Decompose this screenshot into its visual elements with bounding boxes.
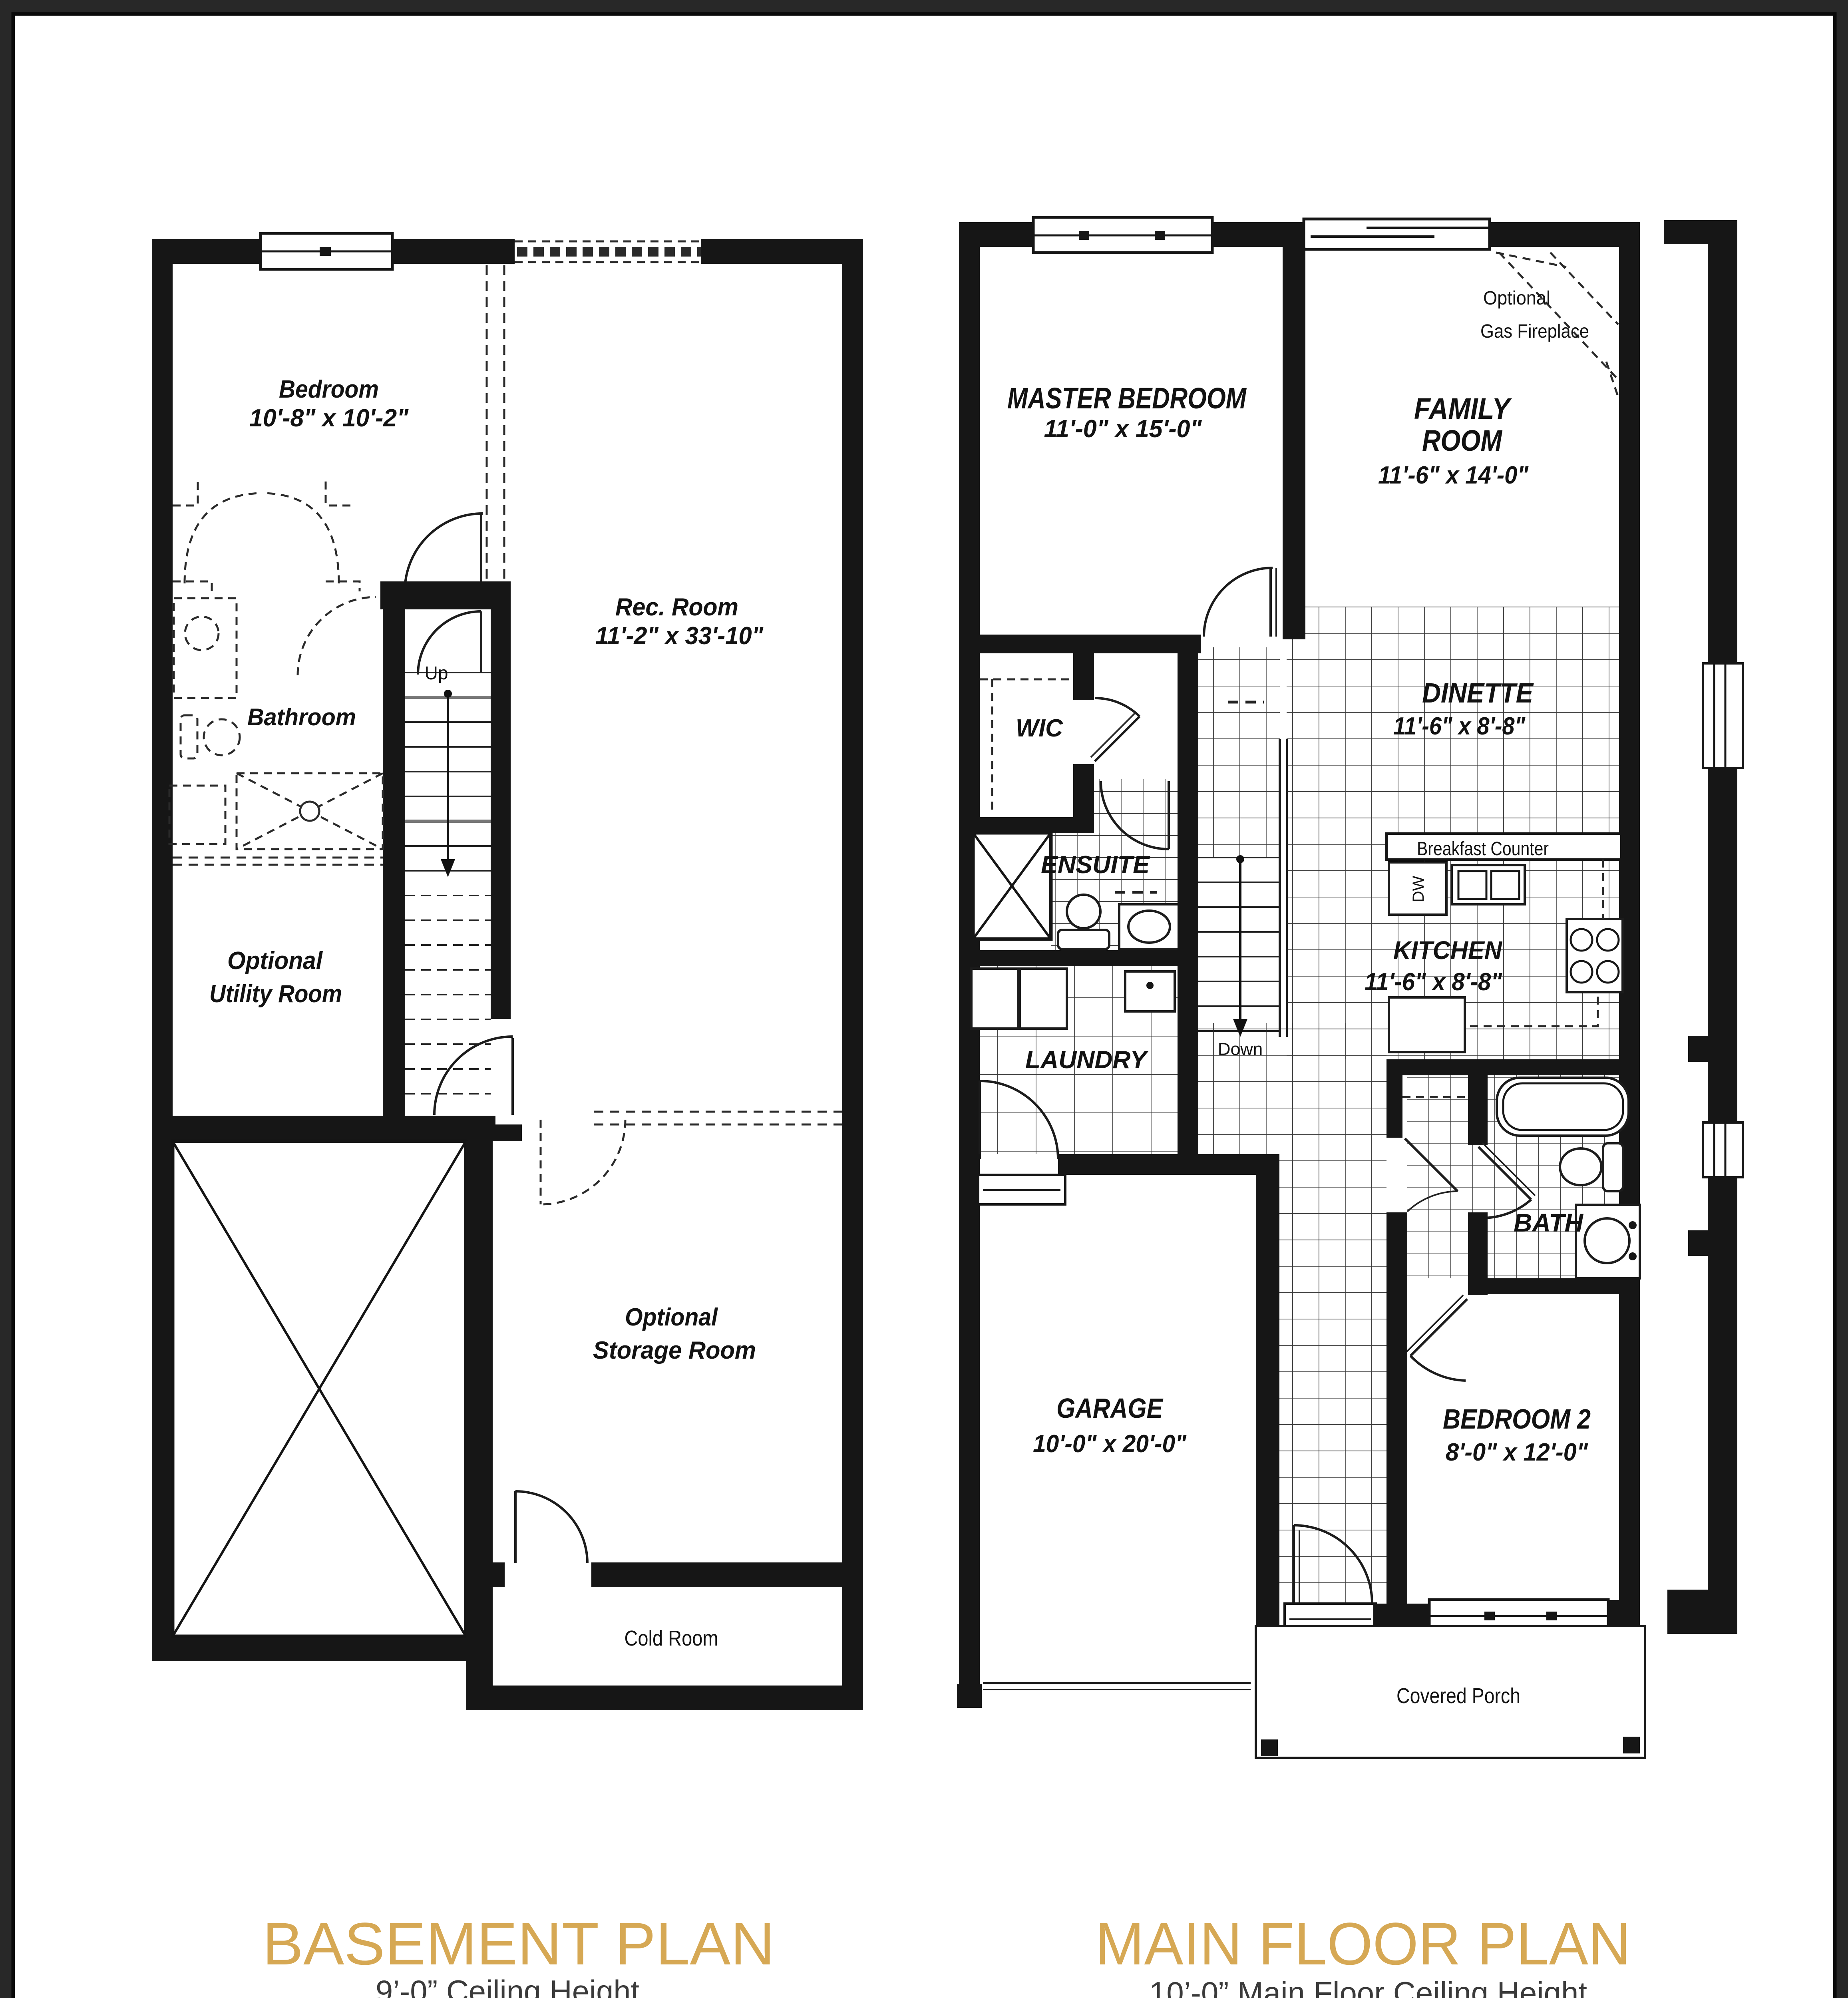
- svg-text:FAMILY: FAMILY: [1414, 392, 1512, 425]
- svg-text:Optional: Optional: [227, 947, 323, 975]
- svg-text:Up: Up: [425, 663, 448, 683]
- svg-text:BASEMENT PLAN: BASEMENT PLAN: [263, 1910, 775, 1977]
- svg-text:11'-6" x 8'-8": 11'-6" x 8'-8": [1393, 712, 1526, 740]
- svg-text:ROOM: ROOM: [1422, 424, 1502, 457]
- svg-text:11'-6" x 8'-8": 11'-6" x 8'-8": [1365, 968, 1503, 996]
- svg-text:MASTER BEDROOM: MASTER BEDROOM: [1007, 382, 1247, 415]
- svg-text:DW: DW: [1410, 876, 1427, 902]
- svg-text:Utility Room: Utility Room: [209, 980, 342, 1008]
- svg-text:Storage Room: Storage Room: [593, 1337, 756, 1364]
- svg-text:9’-0” Ceiling Height: 9’-0” Ceiling Height: [376, 1974, 639, 1998]
- svg-text:Optional: Optional: [625, 1303, 718, 1331]
- svg-text:DINETTE: DINETTE: [1422, 677, 1534, 708]
- svg-text:11'-0" x 15'-0": 11'-0" x 15'-0": [1044, 415, 1203, 443]
- svg-text:KITCHEN: KITCHEN: [1393, 936, 1503, 965]
- svg-text:GARAGE: GARAGE: [1056, 1393, 1164, 1424]
- svg-text:Down: Down: [1218, 1039, 1263, 1059]
- svg-text:Breakfast Counter: Breakfast Counter: [1417, 838, 1549, 860]
- svg-text:WIC: WIC: [1016, 714, 1063, 742]
- svg-text:8'-0" x 12'-0": 8'-0" x 12'-0": [1446, 1439, 1589, 1466]
- svg-text:11'-2" x 33'-10": 11'-2" x 33'-10": [595, 622, 764, 650]
- svg-text:BATH: BATH: [1514, 1208, 1584, 1237]
- svg-text:Bathroom: Bathroom: [247, 704, 356, 730]
- svg-text:ENSUITE: ENSUITE: [1041, 851, 1150, 879]
- svg-text:Rec. Room: Rec. Room: [615, 593, 738, 621]
- svg-text:10'-8" x 10'-2": 10'-8" x 10'-2": [249, 404, 409, 432]
- svg-text:MAIN FLOOR PLAN: MAIN FLOOR PLAN: [1095, 1910, 1631, 1977]
- svg-text:Optional: Optional: [1483, 288, 1550, 309]
- svg-text:Bedroom: Bedroom: [279, 376, 379, 403]
- svg-text:Cold Room: Cold Room: [625, 1626, 718, 1650]
- svg-text:10'-0" x 20'-0": 10'-0" x 20'-0": [1033, 1430, 1187, 1458]
- svg-text:Covered Porch: Covered Porch: [1396, 1684, 1520, 1708]
- svg-text:11'-6" x 14'-0": 11'-6" x 14'-0": [1378, 462, 1529, 489]
- svg-text:Gas Fireplace: Gas Fireplace: [1480, 321, 1589, 342]
- svg-text:LAUNDRY: LAUNDRY: [1025, 1046, 1149, 1074]
- svg-text:BEDROOM 2: BEDROOM 2: [1443, 1403, 1591, 1435]
- svg-text:10’-0” Main Floor Ceiling Heig: 10’-0” Main Floor Ceiling Height: [1149, 1975, 1587, 1998]
